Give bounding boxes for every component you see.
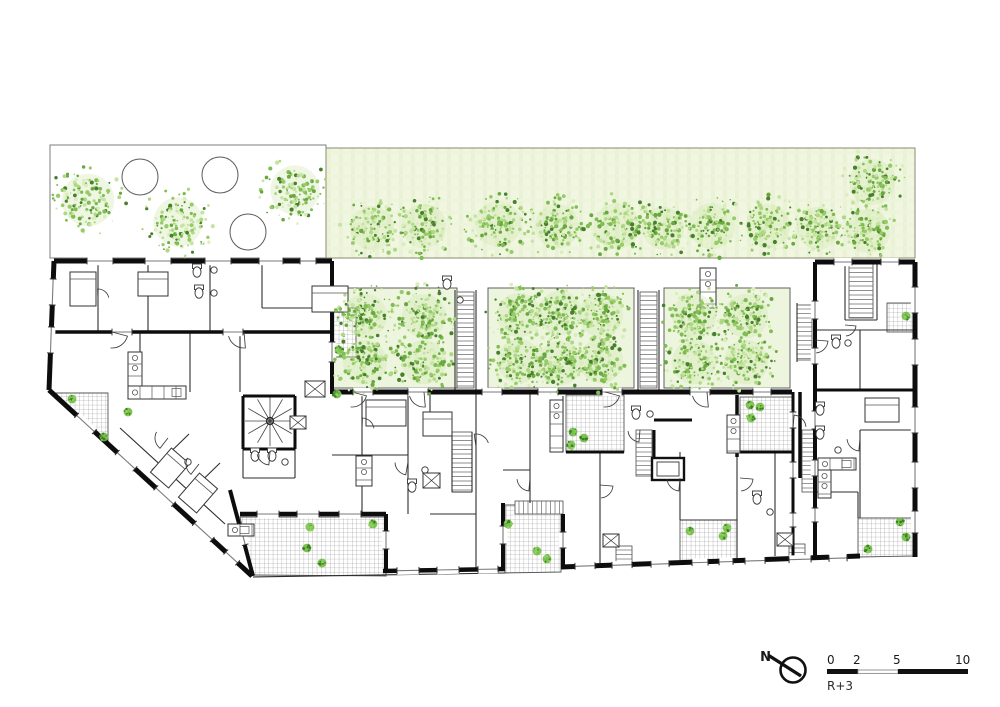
shrub bbox=[569, 428, 578, 437]
scale-bar: 0 2 5 10 R+3 bbox=[827, 653, 970, 693]
shrub bbox=[533, 547, 542, 556]
shrub bbox=[686, 527, 695, 536]
scale-segment-solid-2 bbox=[898, 669, 968, 674]
scale-tick-5: 5 bbox=[893, 653, 901, 667]
shrub bbox=[719, 532, 728, 541]
shrub bbox=[756, 403, 765, 412]
shrub bbox=[318, 559, 327, 568]
scale-tick-10: 10 bbox=[955, 653, 970, 667]
floor-plan-page: N 0 2 5 10 R+3 bbox=[0, 0, 1000, 707]
scale-tick-0: 0 bbox=[827, 653, 835, 667]
floor-label: R+3 bbox=[827, 679, 853, 693]
scale-tick-2: 2 bbox=[853, 653, 861, 667]
scale-segment-solid-1 bbox=[827, 669, 858, 674]
shrub bbox=[123, 408, 132, 417]
shrub bbox=[746, 401, 755, 410]
shrub bbox=[864, 545, 873, 554]
north-label: N bbox=[760, 650, 771, 665]
scale-segment-open bbox=[858, 670, 898, 673]
north-arrow: N bbox=[760, 650, 805, 683]
shrub bbox=[68, 395, 77, 404]
site-greenery-areas bbox=[50, 145, 915, 388]
floor-plan-drawing: N 0 2 5 10 R+3 bbox=[0, 0, 1000, 707]
